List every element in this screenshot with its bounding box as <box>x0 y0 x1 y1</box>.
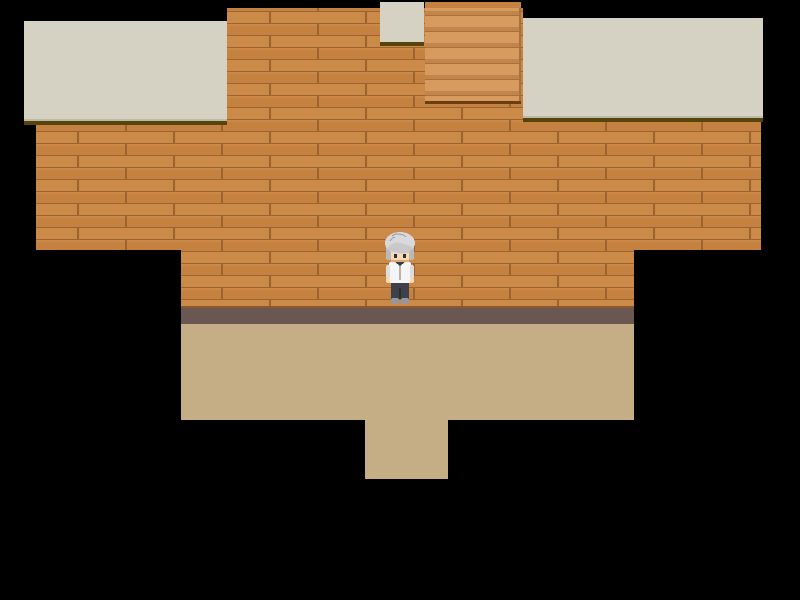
character-shoe-right <box>401 298 409 304</box>
stair-top-landing <box>425 2 521 8</box>
floor-exit-corridor[interactable] <box>365 420 448 479</box>
character-hand-right <box>410 278 414 283</box>
game-viewport[interactable] <box>0 0 800 600</box>
ceiling-panel-right <box>523 18 763 122</box>
character-eye-left <box>394 254 397 258</box>
game-canvas[interactable] <box>0 0 800 600</box>
ceiling-panel-right-shade <box>523 116 763 118</box>
floor-area[interactable] <box>181 324 634 420</box>
character-arm-right <box>410 265 414 279</box>
ceiling-panel-right-surface <box>523 18 763 118</box>
ceiling-panel-left-edge <box>24 121 227 125</box>
ceiling-panel-left-shade <box>24 119 227 121</box>
character-arm-left <box>386 265 390 279</box>
stair-bottom-edge <box>425 101 521 104</box>
ceiling-panel-left <box>24 21 227 125</box>
wall-bottom-shadow <box>181 306 634 308</box>
staircase[interactable] <box>425 2 521 104</box>
stair-steps[interactable] <box>425 8 521 101</box>
character-leg-gap <box>399 288 401 299</box>
wall-main-section <box>36 121 761 250</box>
character-eye-right <box>403 254 406 258</box>
ceiling-panel-left-surface <box>24 21 227 121</box>
ceiling-panel-right-edge <box>523 118 763 122</box>
stair-right-edge <box>519 8 521 101</box>
top-center-panel-edge <box>380 42 424 46</box>
top-center-panel <box>380 2 424 46</box>
top-center-panel-surface <box>380 2 424 42</box>
character-shirt-placket <box>399 266 401 280</box>
character-shoe-left <box>391 298 399 304</box>
baseboard-strip <box>181 308 634 324</box>
character-hand-left <box>386 278 390 283</box>
